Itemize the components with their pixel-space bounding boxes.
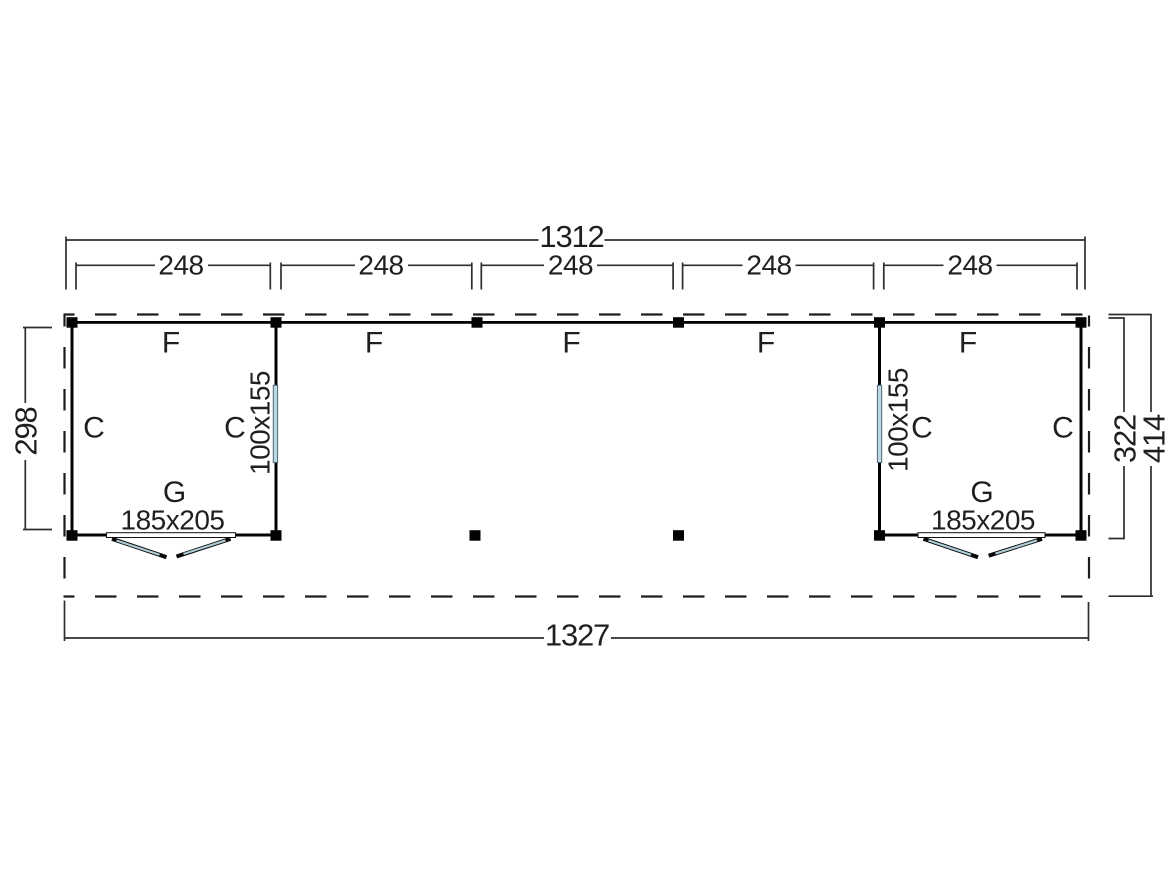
svg-text:298: 298 [9,407,44,455]
svg-text:248: 248 [548,250,593,281]
svg-text:185x205: 185x205 [121,505,225,536]
svg-text:F: F [562,327,580,360]
svg-text:185x205: 185x205 [931,505,1035,536]
svg-text:C: C [224,412,246,445]
svg-text:C: C [1052,412,1074,445]
svg-text:248: 248 [947,250,992,281]
svg-text:C: C [911,412,933,445]
svg-text:1327: 1327 [545,618,609,653]
svg-text:248: 248 [746,250,791,281]
svg-text:248: 248 [158,250,203,281]
svg-text:F: F [959,327,977,360]
svg-text:F: F [162,327,180,360]
svg-text:248: 248 [358,250,403,281]
svg-text:F: F [757,327,775,360]
svg-text:C: C [83,412,105,445]
svg-text:414: 414 [1137,414,1170,463]
svg-text:100x155: 100x155 [883,368,914,472]
svg-text:100x155: 100x155 [245,371,276,475]
svg-text:F: F [365,327,383,360]
